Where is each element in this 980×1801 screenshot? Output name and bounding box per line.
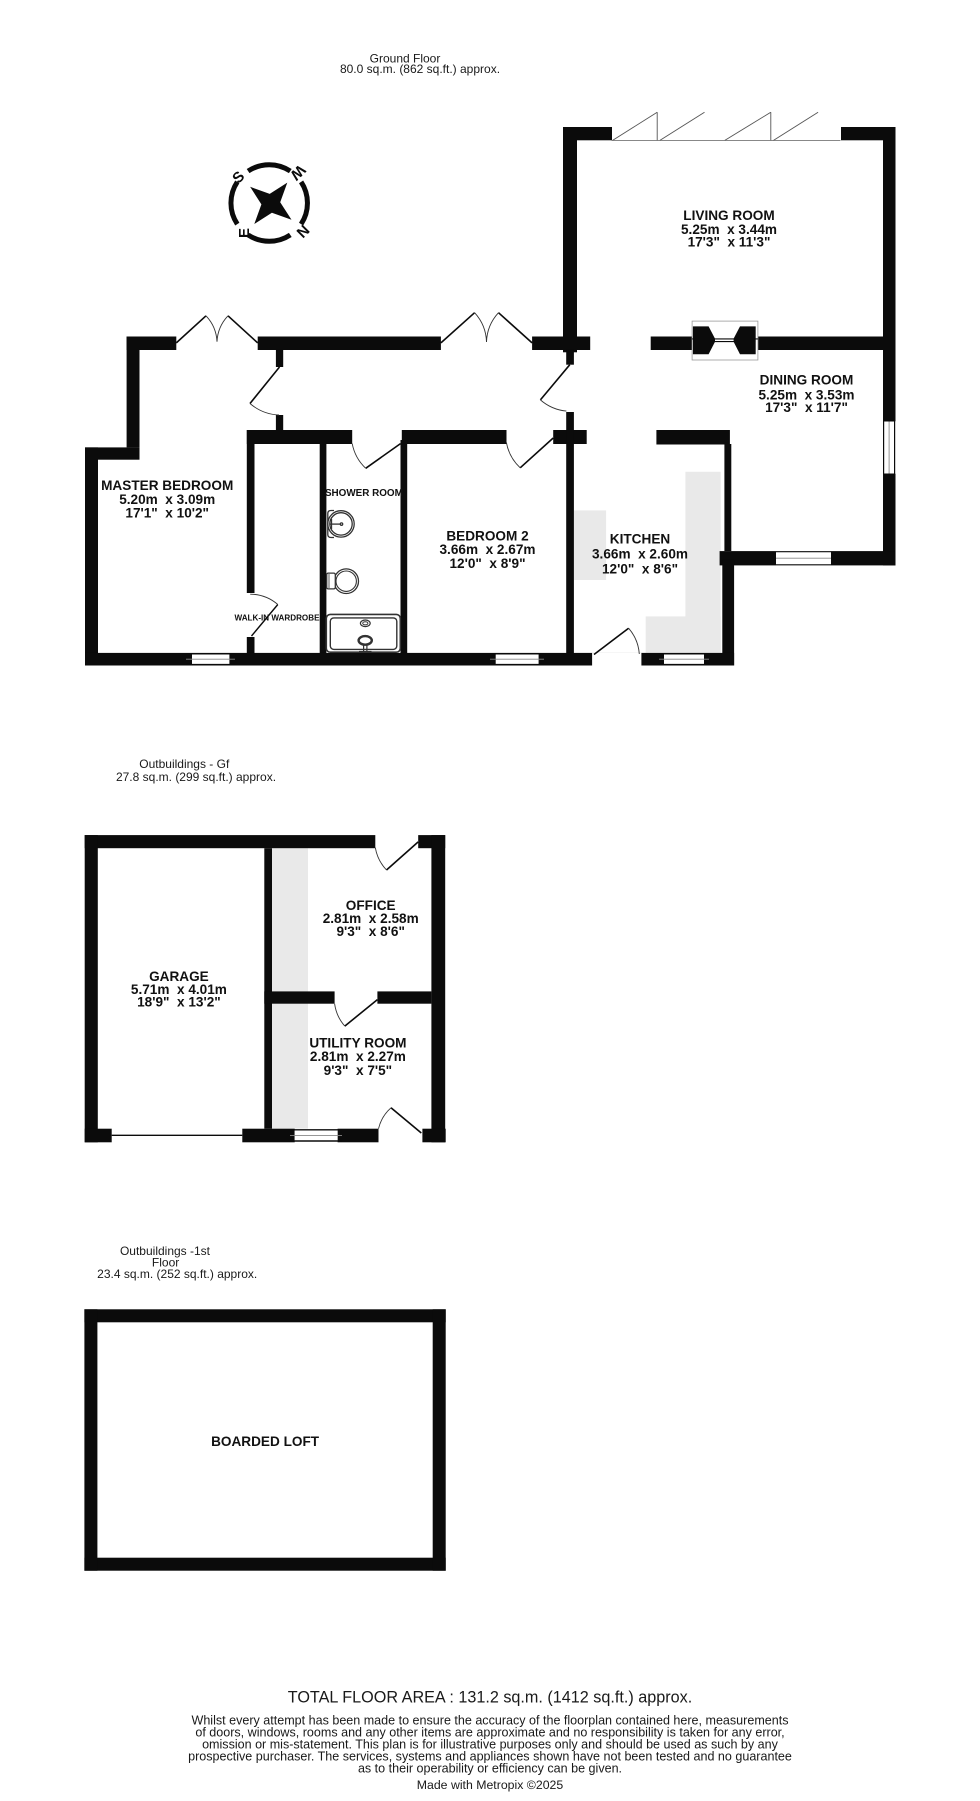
- svg-text:27.8 sq.m. (299 sq.ft.) approx: 27.8 sq.m. (299 sq.ft.) approx.: [116, 770, 276, 784]
- svg-text:9'3" x 8'6": 9'3" x 8'6": [336, 924, 405, 939]
- svg-text:80.0 sq.m. (862 sq.ft.) approx: 80.0 sq.m. (862 sq.ft.) approx.: [340, 62, 500, 76]
- svg-text:BOARDED LOFT: BOARDED LOFT: [211, 1434, 320, 1449]
- svg-text:12'0" x 8'6": 12'0" x 8'6": [602, 561, 678, 576]
- svg-text:Made with Metropix ©2025: Made with Metropix ©2025: [417, 1778, 564, 1792]
- svg-text:3.66m x 2.60m: 3.66m x 2.60m: [592, 546, 688, 561]
- svg-text:MASTER BEDROOM: MASTER BEDROOM: [101, 478, 233, 493]
- svg-text:12'0" x 8'9": 12'0" x 8'9": [449, 556, 525, 571]
- svg-text:KITCHEN: KITCHEN: [610, 531, 670, 546]
- svg-text:LIVING ROOM: LIVING ROOM: [683, 208, 774, 223]
- svg-text:9'3" x 7'5": 9'3" x 7'5": [324, 1063, 393, 1078]
- svg-text:BEDROOM 2: BEDROOM 2: [446, 528, 529, 543]
- svg-text:3.66m x 2.67m: 3.66m x 2.67m: [440, 542, 536, 557]
- svg-text:UTILITY ROOM: UTILITY ROOM: [309, 1035, 406, 1050]
- svg-text:DINING ROOM: DINING ROOM: [760, 373, 854, 388]
- svg-text:E: E: [236, 228, 253, 238]
- svg-text:TOTAL FLOOR AREA : 131.2 sq.m.: TOTAL FLOOR AREA : 131.2 sq.m. (1412 sq.…: [288, 1688, 693, 1706]
- svg-text:17'3" x 11'7": 17'3" x 11'7": [765, 400, 848, 415]
- svg-text:2.81m x 2.27m: 2.81m x 2.27m: [310, 1049, 406, 1064]
- svg-text:23.4 sq.m. (252 sq.ft.) approx: 23.4 sq.m. (252 sq.ft.) approx.: [97, 1267, 257, 1281]
- svg-text:5.20m x 3.09m: 5.20m x 3.09m: [119, 492, 215, 507]
- svg-text:SHOWER ROOM: SHOWER ROOM: [325, 488, 403, 499]
- svg-text:WALK-IN WARDROBE: WALK-IN WARDROBE: [235, 613, 321, 622]
- svg-text:as to their operability or eff: as to their operability or efficiency ca…: [358, 1761, 622, 1775]
- svg-text:17'1" x 10'2": 17'1" x 10'2": [125, 506, 209, 521]
- svg-text:18'9" x 13'2": 18'9" x 13'2": [137, 995, 221, 1010]
- svg-text:17'3" x 11'3": 17'3" x 11'3": [688, 235, 771, 250]
